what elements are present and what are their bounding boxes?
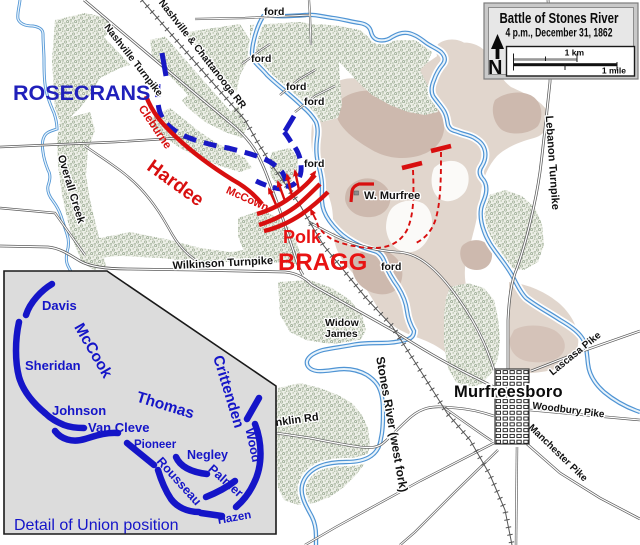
svg-text:Johnson: Johnson: [52, 403, 106, 418]
svg-text:4 p.m., December 31, 1862: 4 p.m., December 31, 1862: [506, 28, 613, 40]
svg-text:BRAGG: BRAGG: [278, 249, 367, 276]
svg-text:Davis: Davis: [42, 298, 77, 313]
svg-text:James: James: [325, 328, 358, 340]
svg-text:Sheridan: Sheridan: [25, 358, 81, 373]
svg-text:ford: ford: [286, 81, 306, 93]
svg-text:ford: ford: [251, 53, 271, 65]
svg-text:ford: ford: [381, 261, 401, 273]
svg-text:Battle of Stones River: Battle of Stones River: [500, 11, 619, 27]
svg-text:1 mile: 1 mile: [602, 66, 626, 76]
svg-text:1 km: 1 km: [565, 48, 585, 58]
svg-text:ROSECRANS: ROSECRANS: [13, 81, 150, 105]
svg-text:Negley: Negley: [187, 448, 228, 462]
svg-text:ford: ford: [304, 158, 324, 170]
svg-text:Detail of Union position: Detail of Union position: [14, 517, 179, 534]
svg-text:N: N: [488, 57, 502, 79]
svg-text:Pioneer: Pioneer: [134, 439, 177, 451]
svg-text:Van Cleve: Van Cleve: [88, 420, 149, 435]
svg-text:W. Murfree: W. Murfree: [364, 190, 420, 202]
svg-text:ford: ford: [264, 6, 284, 18]
svg-text:Murfreesboro: Murfreesboro: [454, 383, 563, 401]
svg-text:ford: ford: [304, 96, 324, 108]
svg-text:Polk: Polk: [283, 227, 322, 247]
